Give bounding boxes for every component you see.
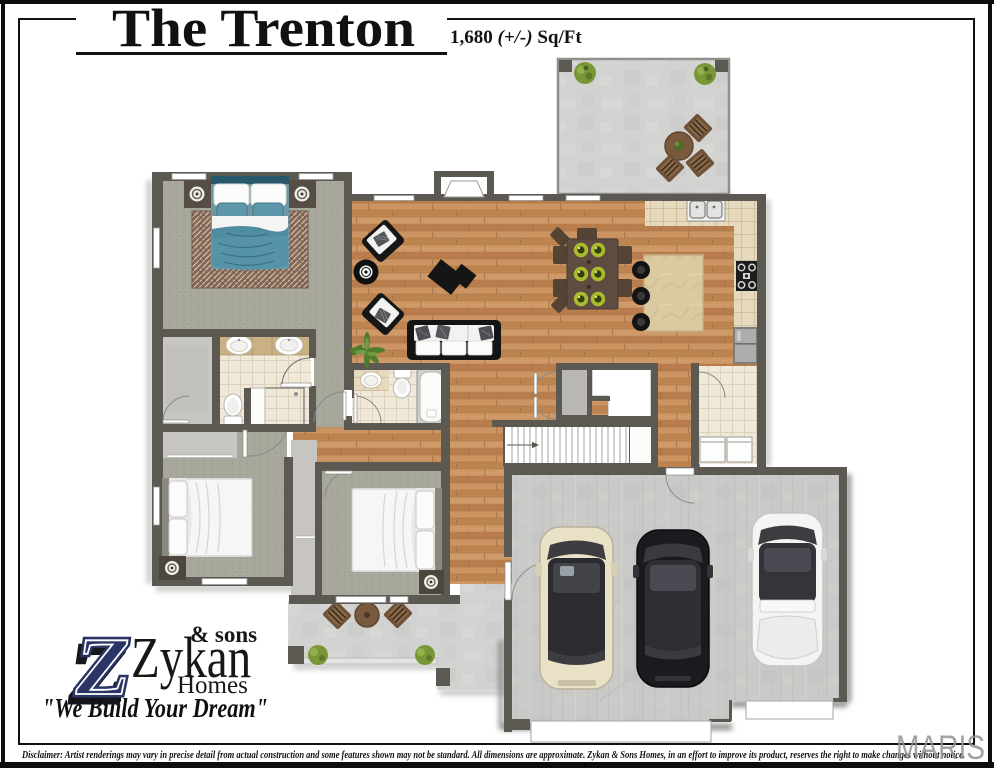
- svg-text:"We Build Your Dream": "We Build Your Dream": [42, 693, 268, 723]
- svg-text:1,680 (+/-) Sq/Ft: 1,680 (+/-) Sq/Ft: [450, 27, 582, 48]
- svg-text:& sons: & sons: [190, 622, 257, 647]
- svg-text:The Trenton: The Trenton: [112, 0, 415, 58]
- svg-text:MARIS: MARIS: [896, 729, 985, 767]
- svg-text:Disclaimer: Artist renderings: Disclaimer: Artist renderings may vary i…: [21, 750, 965, 761]
